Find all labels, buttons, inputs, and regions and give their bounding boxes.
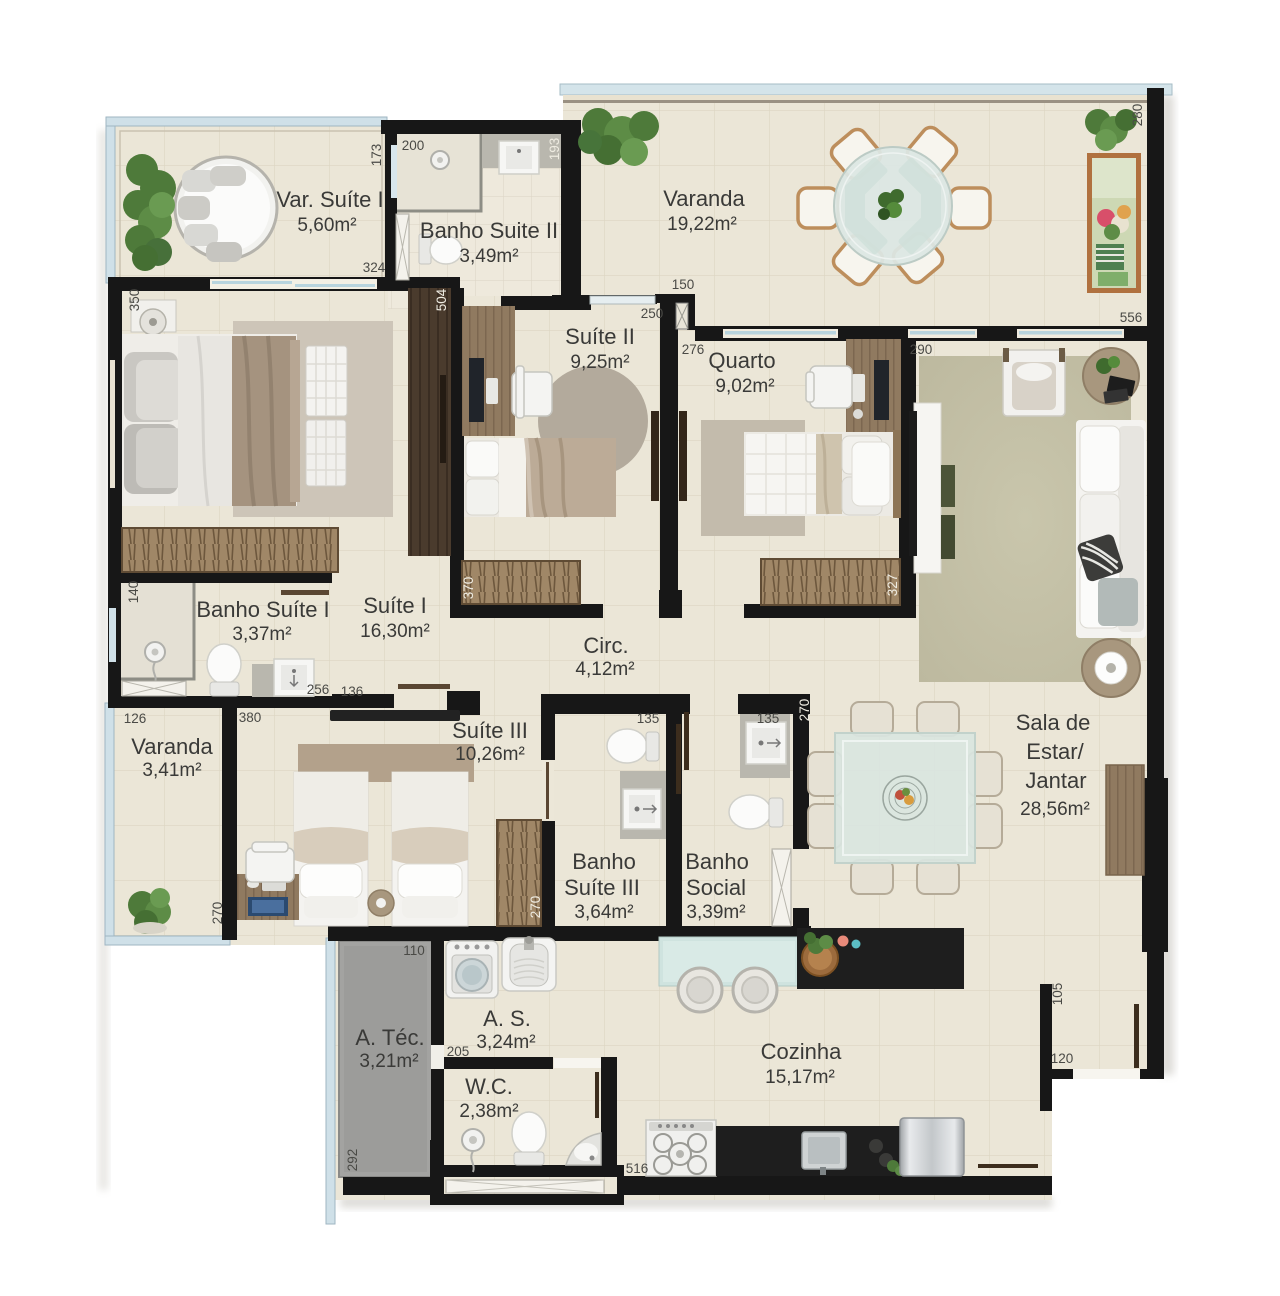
svg-text:Estar/: Estar/ [1026, 739, 1084, 764]
svg-text:3,39m²: 3,39m² [686, 902, 745, 923]
svg-text:Cozinha: Cozinha [761, 1039, 842, 1064]
svg-text:10,26m²: 10,26m² [455, 744, 525, 765]
svg-text:135: 135 [757, 711, 780, 726]
svg-text:Circ.: Circ. [583, 633, 628, 658]
svg-text:9,02m²: 9,02m² [715, 376, 774, 397]
svg-text:Social: Social [686, 875, 746, 900]
svg-text:Sala de: Sala de [1016, 710, 1091, 735]
svg-text:16,30m²: 16,30m² [360, 621, 430, 642]
svg-text:324: 324 [363, 260, 386, 275]
svg-text:Quarto: Quarto [708, 348, 775, 373]
svg-text:150: 150 [672, 277, 695, 292]
svg-text:370: 370 [461, 577, 476, 600]
svg-text:290: 290 [910, 342, 933, 357]
svg-text:Banho: Banho [572, 849, 636, 874]
svg-text:270: 270 [797, 699, 812, 722]
svg-text:280: 280 [1130, 104, 1145, 127]
svg-text:516: 516 [626, 1161, 649, 1176]
svg-text:270: 270 [528, 896, 543, 919]
svg-text:504: 504 [434, 288, 449, 311]
svg-text:3,64m²: 3,64m² [574, 902, 633, 923]
svg-text:28,56m²: 28,56m² [1020, 799, 1090, 820]
svg-text:327: 327 [885, 574, 900, 597]
svg-text:110: 110 [403, 943, 425, 958]
svg-text:Suíte III: Suíte III [452, 718, 528, 743]
svg-text:Suíte I: Suíte I [363, 593, 427, 618]
svg-text:276: 276 [682, 342, 705, 357]
svg-text:200: 200 [402, 138, 425, 153]
svg-text:120: 120 [1051, 1051, 1074, 1066]
svg-text:Suíte II: Suíte II [565, 324, 635, 349]
svg-text:140: 140 [126, 581, 141, 604]
svg-text:380: 380 [239, 710, 262, 725]
svg-text:105: 105 [1050, 983, 1065, 1006]
svg-text:556: 556 [1120, 310, 1143, 325]
svg-text:Suíte III: Suíte III [564, 875, 640, 900]
svg-text:4,12m²: 4,12m² [575, 659, 634, 680]
svg-text:3,37m²: 3,37m² [232, 624, 291, 645]
svg-text:Varanda: Varanda [131, 734, 213, 759]
svg-text:136: 136 [341, 684, 364, 699]
svg-text:9,25m²: 9,25m² [570, 352, 629, 373]
svg-text:A. S.: A. S. [483, 1006, 531, 1031]
svg-text:A. Téc.: A. Téc. [355, 1025, 424, 1050]
svg-text:Banho Suite II: Banho Suite II [420, 218, 558, 243]
svg-text:W.C.: W.C. [465, 1074, 513, 1099]
svg-text:205: 205 [447, 1044, 470, 1059]
svg-text:292: 292 [345, 1149, 360, 1172]
svg-text:3,24m²: 3,24m² [476, 1032, 535, 1053]
svg-text:Var. Suíte I: Var. Suíte I [276, 187, 383, 212]
svg-text:193: 193 [547, 138, 562, 161]
svg-text:Banho Suíte I: Banho Suíte I [196, 597, 329, 622]
svg-text:135: 135 [637, 711, 660, 726]
svg-text:3,21m²: 3,21m² [359, 1051, 418, 1072]
svg-text:256: 256 [307, 682, 330, 697]
svg-text:3,49m²: 3,49m² [459, 246, 518, 267]
svg-text:270: 270 [210, 902, 225, 925]
svg-text:Jantar: Jantar [1025, 768, 1086, 793]
svg-text:350: 350 [127, 289, 142, 312]
svg-text:5,60m²: 5,60m² [297, 215, 356, 236]
svg-text:2,38m²: 2,38m² [459, 1101, 518, 1122]
svg-text:19,22m²: 19,22m² [667, 214, 737, 235]
svg-text:126: 126 [124, 711, 147, 726]
svg-text:250: 250 [641, 306, 664, 321]
svg-text:Varanda: Varanda [663, 186, 745, 211]
svg-text:173: 173 [369, 144, 384, 167]
svg-text:Banho: Banho [685, 849, 749, 874]
svg-text:3,41m²: 3,41m² [142, 760, 201, 781]
svg-text:15,17m²: 15,17m² [765, 1067, 835, 1088]
